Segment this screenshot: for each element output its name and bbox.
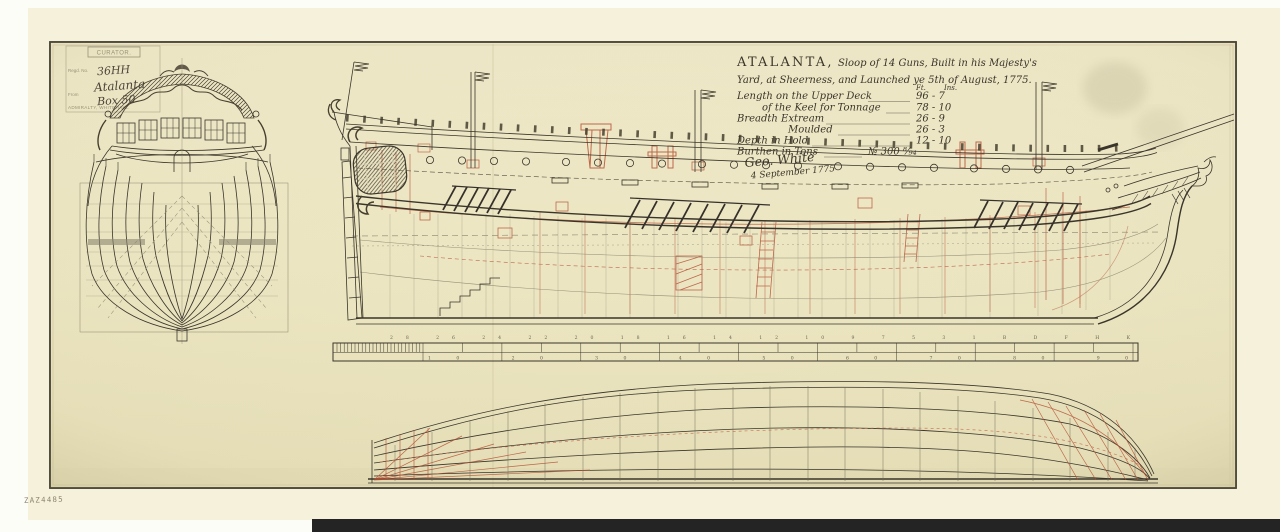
dim-label: of the Keel for Tonnage (762, 103, 881, 114)
dim-value: 96 - 7 (916, 91, 945, 102)
stamp-header: CURATOR. (97, 51, 132, 57)
stamp-from-label: From (68, 92, 79, 97)
title-line2: Yard, at Sheerness, and Launched ye 5th … (737, 75, 1032, 86)
plan-sheet (50, 42, 1236, 488)
paper-smudge (1083, 62, 1147, 114)
title-line1: Sloop of 14 Guns, Built in his Majesty's (838, 58, 1037, 69)
station-numbers-row: 28 26 24 22 20 18 16 14 12 10 9 7 5 3 1 … (390, 335, 1131, 341)
dim-value: 26 - 3 (915, 125, 945, 136)
stamp-reg-label: Regd. No. (68, 68, 88, 73)
dim-label: Length on the Upper Deck (736, 91, 872, 102)
stamp-handwritten-number: 36HH (97, 63, 131, 78)
dim-label: Depth in Hold (736, 136, 808, 147)
paper-smudge (1136, 108, 1184, 148)
dim-label: Breadth Extream (736, 114, 824, 125)
ship-plan-scan: CURATOR. Regd. No. From ADMIRALTY, WHITE… (0, 0, 1280, 532)
body-plan-shaded-waterline (88, 239, 145, 245)
col-header-ins: Ins. (943, 84, 957, 92)
dim-label: Moulded (787, 125, 833, 136)
ship-name-title: ATALANTA, (736, 55, 834, 70)
bottom-scan-bar (312, 519, 1280, 532)
dim-value: 12 - 10 (916, 136, 952, 147)
plan-number: ZAZ4485 (24, 495, 64, 505)
quarter-gallery-icon (352, 144, 409, 195)
dim-value: № 300 ⁸⁄₉₄ (867, 147, 917, 158)
dim-value: 26 - 9 (915, 114, 945, 125)
dim-value: 78 - 10 (916, 103, 952, 114)
